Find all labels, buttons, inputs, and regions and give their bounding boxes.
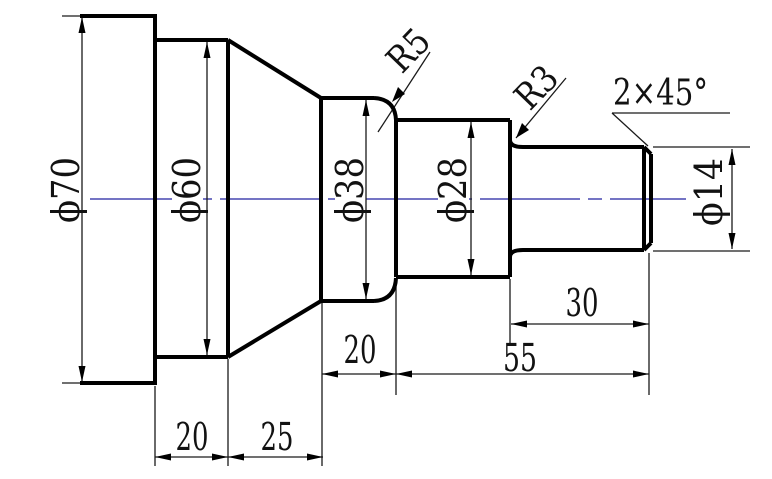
background [0, 0, 772, 479]
phi38-label: ϕ38 [328, 157, 372, 223]
phi28-label: ϕ28 [431, 157, 475, 223]
phi70-label: ϕ70 [44, 157, 88, 223]
length30-label: 30 [566, 281, 599, 325]
length20-phi38-label: 20 [344, 328, 377, 372]
phi60-label: ϕ60 [165, 157, 209, 223]
length25-taper-label: 25 [261, 415, 294, 459]
technical-drawing: ϕ70 ϕ60 ϕ38 ϕ28 ϕ14 R5 R3 2×45° [0, 0, 772, 479]
phi14-label: ϕ14 [687, 158, 731, 226]
chamfer-label: 2×45° [613, 73, 708, 114]
length55-label: 55 [503, 336, 537, 380]
drawing-canvas: ϕ70 ϕ60 ϕ38 ϕ28 ϕ14 R5 R3 2×45° [0, 0, 772, 479]
length20-flange-label: 20 [176, 415, 209, 459]
